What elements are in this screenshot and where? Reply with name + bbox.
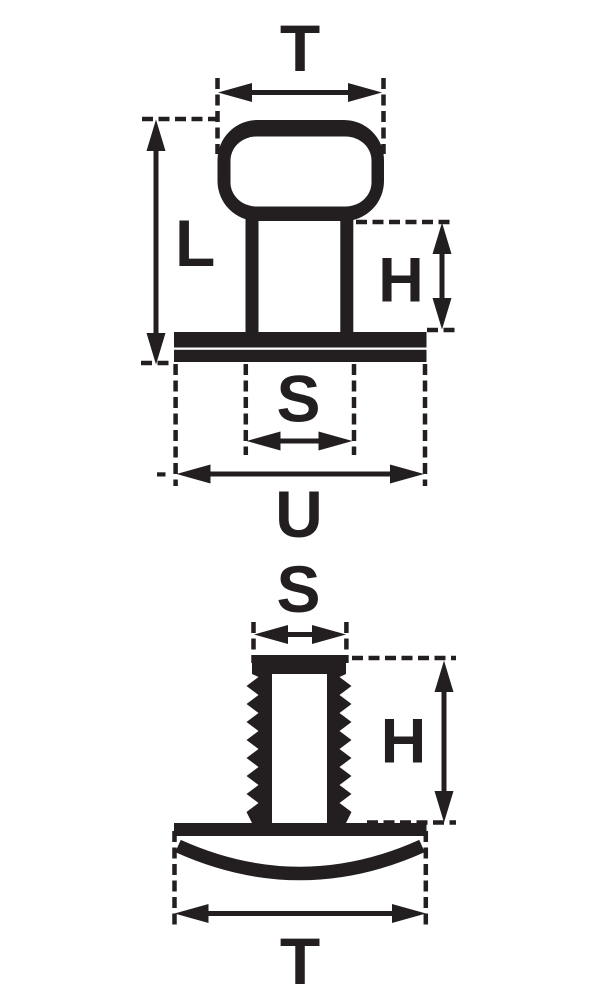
svg-text:H: H xyxy=(378,245,424,315)
svg-text:S: S xyxy=(276,362,320,436)
svg-text:U: U xyxy=(275,477,323,551)
svg-text:L: L xyxy=(175,206,215,280)
svg-text:T: T xyxy=(280,924,320,998)
svg-text:S: S xyxy=(276,552,320,626)
svg-text:T: T xyxy=(280,11,320,85)
svg-text:H: H xyxy=(381,707,427,777)
